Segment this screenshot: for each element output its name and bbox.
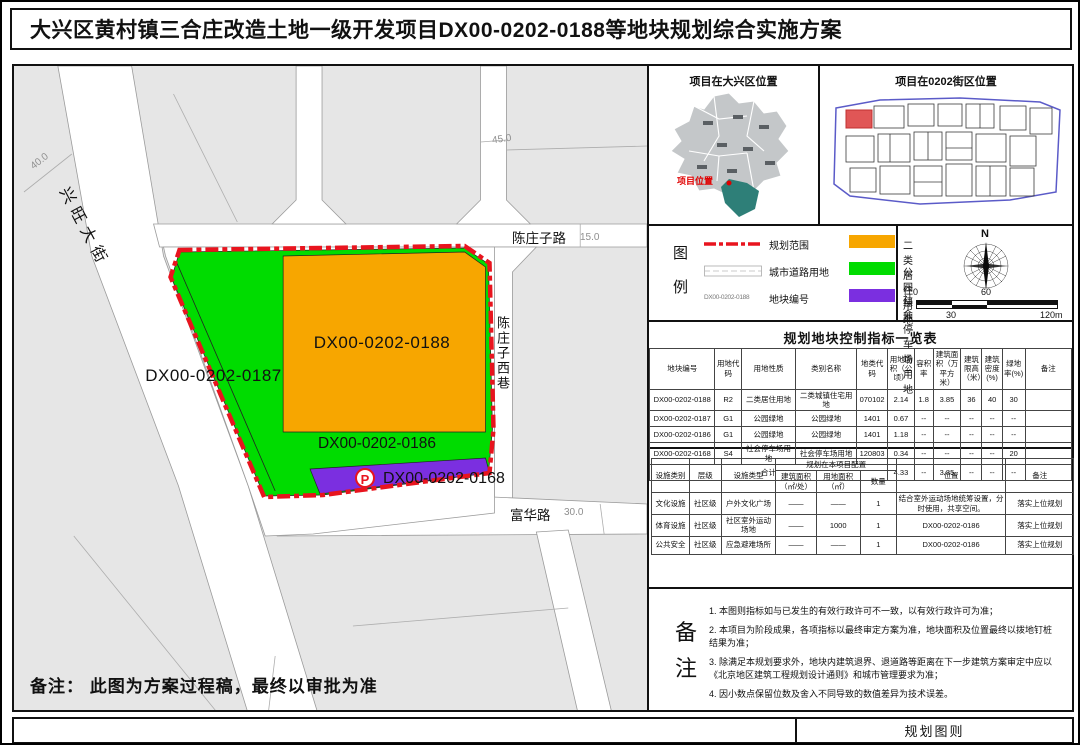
table-cell: 30	[1002, 389, 1025, 411]
sheet-type-label: 规划图则	[797, 719, 1072, 742]
note-item: 3. 除满足本规划要求外，地块内建筑退界、退道路等距离在下一步建筑方案审定中应以…	[709, 656, 1058, 682]
indicator-table-title: 规划地块控制指标一览表	[649, 328, 1072, 347]
compass-rose-icon	[958, 238, 1014, 294]
col-header: 用地性质	[741, 349, 795, 390]
legend-row: 图 例 规划范围 城市道路用地 DX00-0202-0188 地块编号	[649, 226, 1072, 322]
col-header: 地块编号	[650, 349, 715, 390]
legend-heading-char-2: 例	[673, 276, 689, 297]
table-cell: --	[961, 427, 982, 443]
col-header: 设施类别	[652, 459, 690, 493]
col-header: 建筑面积（㎡/处）	[776, 471, 816, 493]
legend-boundary-label: 规划范围	[769, 237, 809, 252]
table-cell: --	[1002, 411, 1025, 427]
notes-label-char-1: 备	[675, 615, 698, 647]
table-cell: ——	[816, 536, 860, 554]
table-cell: 结合室外运动场地统筹设置，分时使用，共享空间。	[896, 493, 1006, 515]
col-header: 类别名称	[796, 349, 857, 390]
table-cell: 1401	[857, 427, 888, 443]
table-cell: 社区级	[689, 493, 721, 515]
road-label-chenzhuangzi: 陈庄子路	[512, 227, 566, 247]
compass-cell: N	[898, 226, 1072, 320]
table-cell: 二类居住用地	[741, 389, 795, 411]
table-cell: 公园绿地	[796, 411, 857, 427]
plot-label-0187: DX00-0202-0187	[126, 366, 301, 386]
col-header: 层级	[689, 459, 721, 493]
col-header: 绿地率(%)	[1002, 349, 1025, 390]
table-row: DX00-0202-0188R2二类居住用地二类城镇住宅用地0701022.14…	[650, 389, 1072, 411]
table-cell: 公园绿地	[741, 427, 795, 443]
legend-plot-number-label: 地块编号	[769, 291, 809, 306]
road-width-15: 15.0	[580, 232, 599, 243]
daxing-map-title: 项目在大兴区位置	[649, 73, 818, 89]
block-location-cell: 项目在0202街区位置	[820, 66, 1072, 224]
indicator-header-row: 地块编号 用地代码 用地性质 类别名称 地类代码 用地面积（公顷） 容积率 建筑…	[650, 349, 1072, 390]
note-item: 4. 因小数点保留位数及舍入不同导致的数值差异为技术误差。	[709, 688, 1058, 701]
table-cell: 36	[961, 389, 982, 411]
road-label-chenzhuangzi-west-lane: 陈庄子西巷	[493, 316, 512, 391]
table-cell: DX00-0202-0186	[896, 536, 1006, 554]
block-map	[830, 94, 1066, 218]
parking-swatch	[849, 289, 895, 302]
table-cell	[1025, 389, 1071, 411]
plot-label-0168: DX00-0202-0168	[383, 470, 505, 488]
table-cell: --	[914, 411, 933, 427]
location-maps-row: 项目在大兴区位置	[649, 66, 1072, 226]
legend: 图 例 规划范围 城市道路用地 DX00-0202-0188 地块编号	[649, 226, 898, 320]
facility-table: 设施类别 层级 设施类型 规划在本项目配置 位置 备注 建筑面积（㎡/处） 用地…	[651, 458, 1074, 555]
parking-icon: P	[355, 468, 375, 488]
daxing-location-cell: 项目在大兴区位置	[649, 66, 820, 224]
table-cell: 户外文化广场	[721, 493, 776, 515]
table-cell: 社区室外运动场地	[721, 514, 776, 536]
col-header: 容积率	[914, 349, 933, 390]
residential-swatch	[849, 235, 895, 248]
table-cell: 社区级	[689, 514, 721, 536]
table-row: 公共安全社区级应急避难场所————1DX00-0202-0186落实上位规划	[652, 536, 1074, 554]
scale-bar	[916, 300, 1058, 309]
table-cell: ——	[776, 536, 816, 554]
daxing-map	[659, 90, 809, 222]
block-map-title: 项目在0202街区位置	[820, 73, 1072, 89]
table-cell: 3.85	[933, 389, 961, 411]
col-header: 建筑限高（米）	[961, 349, 982, 390]
footer-bar: 规划图则	[12, 717, 1074, 744]
plot-label-0186: DX00-0202-0186	[297, 435, 457, 453]
table-cell: R2	[715, 389, 742, 411]
group-header: 规划在本项目配置	[776, 459, 896, 471]
table-cell: DX00-0202-0186	[650, 427, 715, 443]
col-header: 建筑密度(%)	[982, 349, 1002, 390]
table-cell: ——	[776, 493, 816, 515]
col-header: 用地代码	[715, 349, 742, 390]
table-cell: ——	[776, 514, 816, 536]
col-header: 用地面积（㎡）	[816, 471, 860, 493]
table-cell: 应急避难场所	[721, 536, 776, 554]
table-cell: 社区级	[689, 536, 721, 554]
park-swatch	[849, 262, 895, 275]
table-cell: --	[961, 411, 982, 427]
page-title: 大兴区黄村镇三合庄改造土地一级开发项目DX00-0202-0188等地块规划综合…	[10, 8, 1072, 50]
boundary-line-swatch	[704, 240, 762, 248]
notes-label-char-2: 注	[675, 651, 698, 683]
scale-0: 0	[913, 287, 918, 297]
table-cell	[1025, 411, 1071, 427]
scale-120m: 120m	[1040, 310, 1063, 320]
table-row: DX00-0202-0187G1公园绿地公园绿地14010.67--------…	[650, 411, 1072, 427]
table-cell: 体育设施	[652, 514, 690, 536]
plot-label-0188: DX00-0202-0188	[297, 333, 467, 353]
table-cell: 2.14	[887, 389, 914, 411]
road-label-fuhua: 富华路	[510, 504, 551, 524]
table-cell: G1	[715, 427, 742, 443]
table-cell: ——	[816, 493, 860, 515]
table-cell: 公园绿地	[741, 411, 795, 427]
road-width-30: 30.0	[564, 507, 583, 518]
facility-group-header-row: 设施类别 层级 设施类型 规划在本项目配置 位置 备注	[652, 459, 1074, 471]
table-cell: 1	[860, 493, 896, 515]
table-cell: --	[914, 427, 933, 443]
table-cell: --	[933, 411, 961, 427]
info-panel: 项目在大兴区位置	[647, 66, 1072, 710]
indicator-table-section: 规划地块控制指标一览表 地块编号 用地代码 用地性质 类别名称 地类代码	[649, 322, 1072, 449]
table-row: 文化设施社区级户外文化广场————1结合室外运动场地统筹设置，分时使用，共享空间…	[652, 493, 1074, 515]
table-cell: --	[933, 427, 961, 443]
footer-empty-cell	[14, 719, 797, 742]
col-header: 位置	[896, 459, 1006, 493]
table-cell: DX00-0202-0186	[896, 514, 1006, 536]
site-plan-map: DX00-0202-0188 DX00-0202-0187 DX00-0202-…	[14, 66, 647, 710]
table-cell: 40	[982, 389, 1002, 411]
legend-road-label: 城市道路用地	[769, 264, 829, 279]
table-cell: G1	[715, 411, 742, 427]
project-location-dot	[727, 181, 732, 186]
main-frame: DX00-0202-0188 DX00-0202-0187 DX00-0202-…	[12, 64, 1074, 712]
facility-table-section: 设施类别 层级 设施类型 规划在本项目配置 位置 备注 建筑面积（㎡/处） 用地…	[649, 449, 1072, 589]
road-land-swatch	[704, 264, 762, 278]
table-cell: DX00-0202-0187	[650, 411, 715, 427]
col-header: 用地面积（公顷）	[887, 349, 914, 390]
note-item: 1. 本图则指标如与已发生的有效行政许可不一致，以有效行政许可为准；	[709, 605, 1058, 618]
table-cell: 070102	[857, 389, 888, 411]
note-item: 2. 本项目为阶段成果，各项指标以最终审定方案为准，地块面积及位置最终以拨地钉桩…	[709, 624, 1058, 650]
plan-sheet: 大兴区黄村镇三合庄改造土地一级开发项目DX00-0202-0188等地块规划综合…	[0, 0, 1080, 745]
table-cell: 1000	[816, 514, 860, 536]
col-header: 建筑面积（万平方米）	[933, 349, 961, 390]
table-cell: 1	[860, 514, 896, 536]
table-cell: 公共安全	[652, 536, 690, 554]
table-cell: DX00-0202-0188	[650, 389, 715, 411]
table-cell: 落实上位规划	[1006, 536, 1074, 554]
table-row: DX00-0202-0186G1公园绿地公园绿地14011.18--------…	[650, 427, 1072, 443]
col-header: 备注	[1006, 459, 1074, 493]
table-cell: 落实上位规划	[1006, 493, 1074, 515]
col-header: 设施类型	[721, 459, 776, 493]
table-cell: 1.8	[914, 389, 933, 411]
table-cell: --	[982, 411, 1002, 427]
road-chenzhuangzi-shape	[154, 224, 647, 247]
table-cell: 落实上位规划	[1006, 514, 1074, 536]
table-cell: 文化设施	[652, 493, 690, 515]
table-cell: 公园绿地	[796, 427, 857, 443]
block-highlight-parcel	[846, 110, 872, 128]
table-cell: 二类城镇住宅用地	[796, 389, 857, 411]
table-row: 体育设施社区级社区室外运动场地——10001DX00-0202-0186落实上位…	[652, 514, 1074, 536]
col-header: 备注	[1025, 349, 1071, 390]
site-plan-drawing	[14, 66, 647, 710]
table-cell: --	[1002, 427, 1025, 443]
table-cell: --	[982, 427, 1002, 443]
table-cell	[1025, 427, 1071, 443]
col-header: 数量	[860, 471, 896, 493]
scale-60: 60	[981, 287, 991, 297]
project-location-label: 项目位置	[677, 174, 713, 187]
table-cell: 1401	[857, 411, 888, 427]
table-cell: 0.67	[887, 411, 914, 427]
scale-30: 30	[946, 310, 956, 320]
plot-number-sample: DX00-0202-0188	[704, 294, 749, 301]
notes-section: 备 注 1. 本图则指标如与已发生的有效行政许可不一致，以有效行政许可为准；2.…	[649, 589, 1072, 710]
map-draft-note: 备注： 此图为方案过程稿，最终以审批为准	[30, 672, 378, 697]
notes-list: 1. 本图则指标如与已发生的有效行政许可不一致，以有效行政许可为准；2. 本项目…	[709, 605, 1058, 707]
legend-heading-char-1: 图	[673, 242, 689, 263]
col-header: 地类代码	[857, 349, 888, 390]
table-cell: 1.18	[887, 427, 914, 443]
table-cell: 1	[860, 536, 896, 554]
